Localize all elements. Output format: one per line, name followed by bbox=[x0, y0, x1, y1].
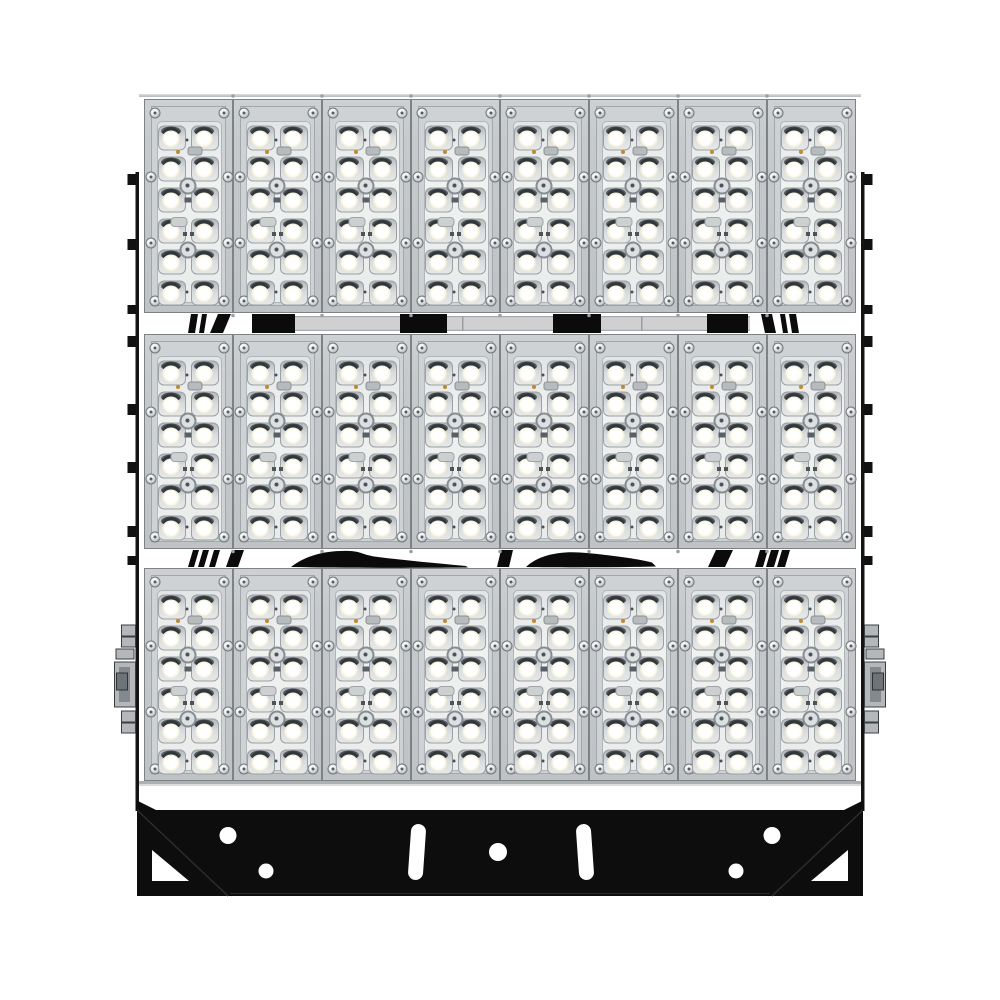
led-lens bbox=[369, 626, 397, 651]
pcb-dot bbox=[542, 139, 545, 142]
mounting-bracket bbox=[136, 800, 864, 896]
pcb-chip bbox=[813, 701, 817, 705]
module-screw bbox=[401, 641, 412, 652]
amber-indicator bbox=[799, 150, 803, 154]
pcb-connector bbox=[185, 667, 192, 672]
led-module bbox=[767, 99, 856, 313]
pcb-dot bbox=[186, 139, 189, 142]
module-screw bbox=[401, 238, 412, 249]
pcb-connector bbox=[808, 433, 815, 438]
screw-boss bbox=[803, 477, 820, 494]
module-screw bbox=[575, 108, 586, 119]
led-module bbox=[322, 99, 411, 313]
pcb-dot bbox=[542, 374, 545, 377]
led-lens bbox=[603, 392, 631, 417]
led-lens bbox=[636, 157, 664, 182]
pcb-dot bbox=[809, 291, 812, 294]
rail-tab bbox=[864, 404, 873, 415]
led-lens bbox=[514, 595, 542, 620]
pcb-pill bbox=[277, 616, 292, 625]
screw-boss bbox=[447, 178, 464, 195]
pcb-dot bbox=[275, 374, 278, 377]
module-screw bbox=[413, 641, 424, 652]
module-screw bbox=[239, 108, 250, 119]
pcb-dot bbox=[631, 608, 634, 611]
pcb-chip bbox=[717, 467, 721, 471]
pcb-pill bbox=[722, 382, 737, 391]
pcb-dot bbox=[364, 291, 367, 294]
pcb-connector bbox=[719, 433, 726, 438]
module-screw bbox=[223, 641, 234, 652]
pcb-chip bbox=[724, 467, 728, 471]
module-screw bbox=[417, 343, 428, 354]
right-clamp-hardware bbox=[865, 625, 886, 733]
pcb-pill bbox=[455, 147, 470, 156]
pcb-dot bbox=[631, 760, 634, 763]
module-screw bbox=[235, 474, 246, 485]
module-screw bbox=[575, 532, 586, 543]
pcb-connector bbox=[274, 667, 281, 672]
pcb-dot bbox=[453, 608, 456, 611]
pcb-pill bbox=[722, 147, 737, 156]
module-screw bbox=[328, 108, 339, 119]
pcb-connector bbox=[630, 433, 637, 438]
screw-boss bbox=[180, 242, 197, 259]
pcb-dot bbox=[453, 374, 456, 377]
module-screw bbox=[668, 238, 679, 249]
module-screw bbox=[219, 296, 230, 307]
pcb-dot bbox=[720, 526, 723, 529]
led-lens bbox=[547, 392, 575, 417]
screw-boss bbox=[536, 711, 553, 728]
module-screw bbox=[579, 407, 590, 418]
module-screw bbox=[397, 296, 408, 307]
cable bbox=[226, 550, 244, 567]
cable bbox=[761, 314, 776, 333]
screw-boss bbox=[714, 711, 731, 728]
led-lens bbox=[247, 516, 275, 541]
pcb-pill bbox=[633, 147, 648, 156]
pcb-pill bbox=[188, 616, 203, 625]
led-lens bbox=[636, 219, 664, 244]
led-lens bbox=[636, 423, 664, 448]
edge-screw-dot bbox=[765, 550, 769, 554]
led-lens bbox=[547, 157, 575, 182]
led-lens bbox=[781, 157, 809, 182]
led-lens bbox=[336, 157, 364, 182]
led-module bbox=[144, 568, 233, 781]
housing-top-edge bbox=[139, 94, 861, 97]
led-lens bbox=[336, 281, 364, 306]
led-lens bbox=[603, 516, 631, 541]
pcb-connector bbox=[185, 198, 192, 203]
housing-bottom-edge-highlight bbox=[139, 784, 861, 786]
pcb-pill bbox=[438, 217, 455, 227]
rail-tab bbox=[128, 174, 137, 185]
pcb-pill bbox=[811, 616, 826, 625]
amber-indicator bbox=[621, 150, 625, 154]
screw-boss bbox=[536, 178, 553, 195]
pcb-dot bbox=[720, 608, 723, 611]
led-lens bbox=[636, 750, 664, 775]
pcb-connector bbox=[452, 667, 459, 672]
led-lens bbox=[814, 423, 842, 448]
pcb-chip bbox=[539, 467, 543, 471]
amber-indicator bbox=[176, 385, 180, 389]
led-lens bbox=[781, 392, 809, 417]
led-lens bbox=[425, 595, 453, 620]
pcb-dot bbox=[720, 139, 723, 142]
led-lens bbox=[692, 126, 720, 151]
amber-indicator bbox=[443, 619, 447, 623]
led-module bbox=[322, 334, 411, 549]
led-lens bbox=[247, 595, 275, 620]
pcb-connector bbox=[541, 198, 548, 203]
led-module bbox=[500, 334, 589, 549]
led-lens bbox=[725, 392, 753, 417]
led-lens bbox=[158, 626, 186, 651]
led-lens bbox=[692, 157, 720, 182]
led-lens bbox=[280, 219, 308, 244]
pcb-pill bbox=[811, 382, 826, 391]
module-screw bbox=[506, 343, 517, 354]
pcb-connector bbox=[185, 433, 192, 438]
screw-boss bbox=[358, 413, 375, 430]
module-screw bbox=[664, 108, 675, 119]
module-screw bbox=[308, 577, 319, 588]
screw-boss bbox=[447, 242, 464, 259]
module-screw bbox=[401, 474, 412, 485]
module-screw bbox=[591, 474, 602, 485]
pcb-pill bbox=[633, 616, 648, 625]
led-lens bbox=[369, 188, 397, 213]
module-screw bbox=[595, 343, 606, 354]
led-lens bbox=[603, 126, 631, 151]
module-screw bbox=[842, 343, 853, 354]
pcb-chip bbox=[628, 701, 632, 705]
led-lens bbox=[336, 126, 364, 151]
pcb-chip bbox=[368, 467, 372, 471]
module-screw bbox=[846, 474, 857, 485]
pcb-chip bbox=[272, 467, 276, 471]
led-lens bbox=[336, 361, 364, 386]
led-lens bbox=[336, 516, 364, 541]
pcb-chip bbox=[628, 232, 632, 236]
amber-indicator bbox=[532, 150, 536, 154]
module-screw bbox=[397, 577, 408, 588]
cable-grommet bbox=[553, 314, 601, 333]
led-lens bbox=[280, 281, 308, 306]
led-lens bbox=[725, 750, 753, 775]
screw-boss bbox=[625, 711, 642, 728]
pcb-pill bbox=[794, 686, 811, 696]
screw-boss bbox=[269, 477, 286, 494]
module-screw bbox=[595, 577, 606, 588]
module-screw bbox=[846, 641, 857, 652]
led-module bbox=[144, 334, 233, 549]
module-screw bbox=[235, 238, 246, 249]
led-lens bbox=[514, 126, 542, 151]
led-lens bbox=[725, 219, 753, 244]
pcb-dot bbox=[364, 760, 367, 763]
module-screw bbox=[401, 172, 412, 183]
screw-boss bbox=[625, 477, 642, 494]
amber-indicator bbox=[799, 385, 803, 389]
module-screw bbox=[842, 764, 853, 775]
pcb-dot bbox=[186, 291, 189, 294]
module-screw bbox=[757, 172, 768, 183]
pcb-chip bbox=[457, 467, 461, 471]
led-module bbox=[678, 568, 767, 781]
module-screw bbox=[753, 532, 764, 543]
amber-indicator bbox=[176, 150, 180, 154]
amber-indicator bbox=[265, 150, 269, 154]
rail-tab bbox=[864, 174, 873, 185]
led-lens bbox=[514, 626, 542, 651]
rail-tab bbox=[864, 556, 873, 565]
led-lens bbox=[603, 626, 631, 651]
led-lens bbox=[425, 126, 453, 151]
led-lens bbox=[814, 626, 842, 651]
module-screw bbox=[312, 641, 323, 652]
led-lens bbox=[336, 392, 364, 417]
screw-boss bbox=[536, 647, 553, 664]
amber-indicator bbox=[265, 385, 269, 389]
led-lens bbox=[458, 688, 486, 713]
led-lens bbox=[158, 516, 186, 541]
module-screw bbox=[146, 641, 157, 652]
pcb-chip bbox=[717, 232, 721, 236]
pcb-pill bbox=[349, 452, 366, 462]
pcb-connector bbox=[808, 198, 815, 203]
led-lens bbox=[158, 361, 186, 386]
module-screw bbox=[308, 108, 319, 119]
left-rail bbox=[136, 172, 140, 811]
pcb-dot bbox=[542, 291, 545, 294]
led-lens bbox=[336, 595, 364, 620]
screw-boss bbox=[358, 647, 375, 664]
led-module bbox=[589, 99, 678, 313]
pcb-pill bbox=[188, 382, 203, 391]
pcb-dot bbox=[809, 608, 812, 611]
module-screw bbox=[773, 343, 784, 354]
module-screw bbox=[312, 407, 323, 418]
module-screw bbox=[401, 707, 412, 718]
rail-tab bbox=[128, 526, 137, 537]
led-module bbox=[589, 334, 678, 549]
module-screw bbox=[146, 407, 157, 418]
led-lens bbox=[547, 688, 575, 713]
rail-tab bbox=[864, 305, 873, 314]
pcb-pill bbox=[544, 382, 559, 391]
screw-boss bbox=[714, 178, 731, 195]
edge-screw-dot bbox=[320, 314, 324, 318]
bracket-hole bbox=[259, 864, 274, 879]
pcb-chip bbox=[450, 701, 454, 705]
module-screw bbox=[146, 474, 157, 485]
led-lens bbox=[514, 157, 542, 182]
cable bbox=[188, 314, 198, 333]
pcb-dot bbox=[631, 139, 634, 142]
module-screw bbox=[239, 343, 250, 354]
left-clamp-hardware bbox=[115, 625, 136, 733]
led-lens bbox=[280, 516, 308, 541]
led-lens bbox=[425, 750, 453, 775]
module-screw bbox=[235, 407, 246, 418]
led-lens bbox=[191, 188, 219, 213]
module-screw bbox=[506, 108, 517, 119]
pcb-dot bbox=[720, 291, 723, 294]
pcb-pill bbox=[260, 217, 277, 227]
rail-tab bbox=[864, 462, 873, 473]
pcb-dot bbox=[542, 526, 545, 529]
led-lens bbox=[603, 595, 631, 620]
led-lens bbox=[458, 750, 486, 775]
led-lens bbox=[814, 188, 842, 213]
screw-boss bbox=[358, 242, 375, 259]
led-lens bbox=[280, 392, 308, 417]
screw-boss bbox=[180, 477, 197, 494]
screw-boss bbox=[269, 413, 286, 430]
module-screw bbox=[235, 707, 246, 718]
module-screw bbox=[664, 532, 675, 543]
cable bbox=[209, 550, 220, 567]
pcb-chip bbox=[361, 232, 365, 236]
module-screw bbox=[324, 172, 335, 183]
pcb-chip bbox=[724, 232, 728, 236]
bracket-hole bbox=[764, 827, 781, 844]
amber-indicator bbox=[710, 150, 714, 154]
module-screw bbox=[842, 532, 853, 543]
pcb-chip bbox=[272, 232, 276, 236]
led-lens bbox=[158, 157, 186, 182]
amber-indicator bbox=[443, 385, 447, 389]
led-lens bbox=[247, 157, 275, 182]
led-lens bbox=[158, 392, 186, 417]
pcb-pill bbox=[260, 452, 277, 462]
pcb-chip bbox=[635, 701, 639, 705]
screw-boss bbox=[269, 242, 286, 259]
screw-boss bbox=[358, 477, 375, 494]
led-lens bbox=[814, 454, 842, 479]
module-screw bbox=[417, 577, 428, 588]
led-lens bbox=[603, 750, 631, 775]
module-screw bbox=[413, 474, 424, 485]
module-screw bbox=[579, 641, 590, 652]
module-screw bbox=[235, 641, 246, 652]
cable bbox=[766, 550, 779, 567]
pcb-pill bbox=[438, 452, 455, 462]
module-screw bbox=[664, 764, 675, 775]
module-screw bbox=[308, 343, 319, 354]
edge-screw-dot bbox=[765, 314, 769, 318]
module-screw bbox=[490, 238, 501, 249]
led-lens bbox=[781, 595, 809, 620]
module-screw bbox=[490, 707, 501, 718]
led-lens bbox=[191, 157, 219, 182]
screw-boss bbox=[358, 711, 375, 728]
led-lens bbox=[547, 626, 575, 651]
led-lens bbox=[280, 626, 308, 651]
screw-boss bbox=[803, 178, 820, 195]
led-lens bbox=[636, 454, 664, 479]
pcb-connector bbox=[363, 198, 370, 203]
led-lens bbox=[247, 281, 275, 306]
module-screw bbox=[757, 641, 768, 652]
module-screw bbox=[680, 707, 691, 718]
led-lens bbox=[636, 516, 664, 541]
led-lens bbox=[636, 688, 664, 713]
led-lens bbox=[280, 750, 308, 775]
pcb-connector bbox=[452, 433, 459, 438]
pcb-dot bbox=[364, 374, 367, 377]
module-screw bbox=[591, 707, 602, 718]
edge-screw-dot bbox=[676, 314, 680, 318]
module-screw bbox=[684, 108, 695, 119]
screw-boss bbox=[803, 242, 820, 259]
module-screw bbox=[486, 532, 497, 543]
module-screw bbox=[842, 577, 853, 588]
bracket-right-ear bbox=[842, 800, 864, 811]
pcb-pill bbox=[171, 686, 188, 696]
led-lens bbox=[425, 516, 453, 541]
module-screw bbox=[684, 577, 695, 588]
led-lens bbox=[280, 423, 308, 448]
module-screw bbox=[757, 407, 768, 418]
pcb-pill bbox=[188, 147, 203, 156]
module-screw bbox=[328, 577, 339, 588]
cable bbox=[755, 550, 768, 567]
led-module bbox=[411, 568, 500, 781]
module-screw bbox=[219, 764, 230, 775]
led-lens bbox=[514, 516, 542, 541]
module-screw bbox=[324, 707, 335, 718]
led-lens bbox=[458, 423, 486, 448]
module-screw bbox=[413, 172, 424, 183]
led-lens bbox=[247, 392, 275, 417]
screw-boss bbox=[536, 413, 553, 430]
module-screw bbox=[401, 407, 412, 418]
module-screw bbox=[324, 474, 335, 485]
led-lens bbox=[458, 392, 486, 417]
pcb-pill bbox=[527, 217, 544, 227]
pcb-chip bbox=[546, 467, 550, 471]
led-lens bbox=[280, 188, 308, 213]
module-screw bbox=[664, 296, 675, 307]
pcb-dot bbox=[720, 374, 723, 377]
rail-tab bbox=[128, 336, 137, 347]
led-lens bbox=[369, 750, 397, 775]
edge-screw-dot bbox=[409, 550, 413, 554]
module-screw bbox=[664, 577, 675, 588]
led-module bbox=[767, 568, 856, 781]
amber-indicator bbox=[621, 385, 625, 389]
module-screw bbox=[490, 474, 501, 485]
pcb-chip bbox=[457, 232, 461, 236]
led-lens bbox=[814, 516, 842, 541]
led-lens bbox=[369, 219, 397, 244]
screw-boss bbox=[625, 413, 642, 430]
led-lens bbox=[369, 516, 397, 541]
module-screw bbox=[773, 577, 784, 588]
screw-boss bbox=[447, 711, 464, 728]
led-lens bbox=[280, 157, 308, 182]
pcb-dot bbox=[275, 291, 278, 294]
screw-boss bbox=[714, 413, 731, 430]
led-lens bbox=[692, 750, 720, 775]
module-screw bbox=[846, 238, 857, 249]
led-module bbox=[233, 334, 322, 549]
